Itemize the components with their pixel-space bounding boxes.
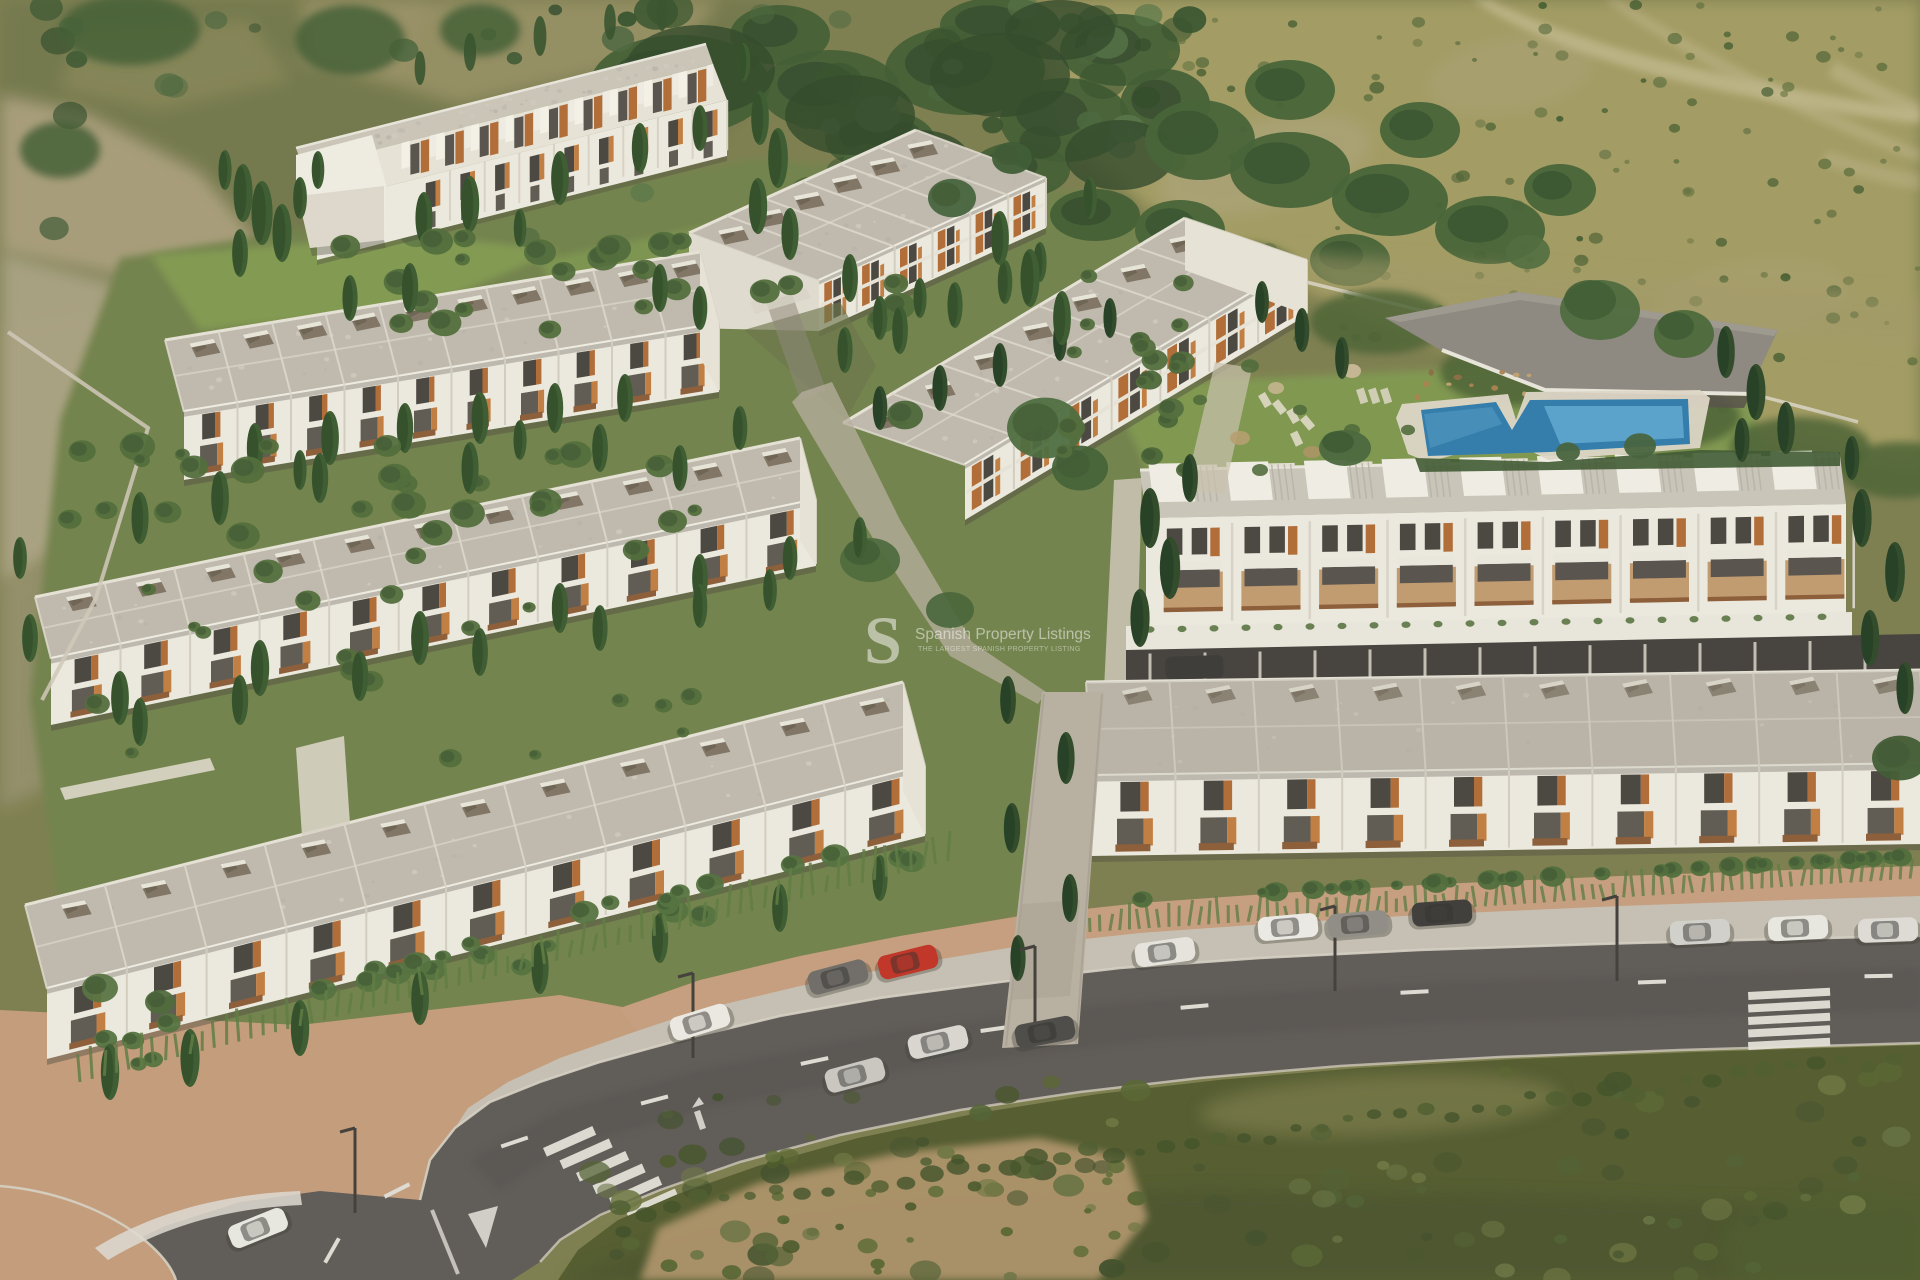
svg-text:THE LARGEST SPANISH PROPERTY L: THE LARGEST SPANISH PROPERTY LISTING	[918, 646, 1081, 653]
svg-text:S: S	[864, 602, 902, 678]
svg-text:Spanish Property Listings: Spanish Property Listings	[915, 626, 1091, 643]
